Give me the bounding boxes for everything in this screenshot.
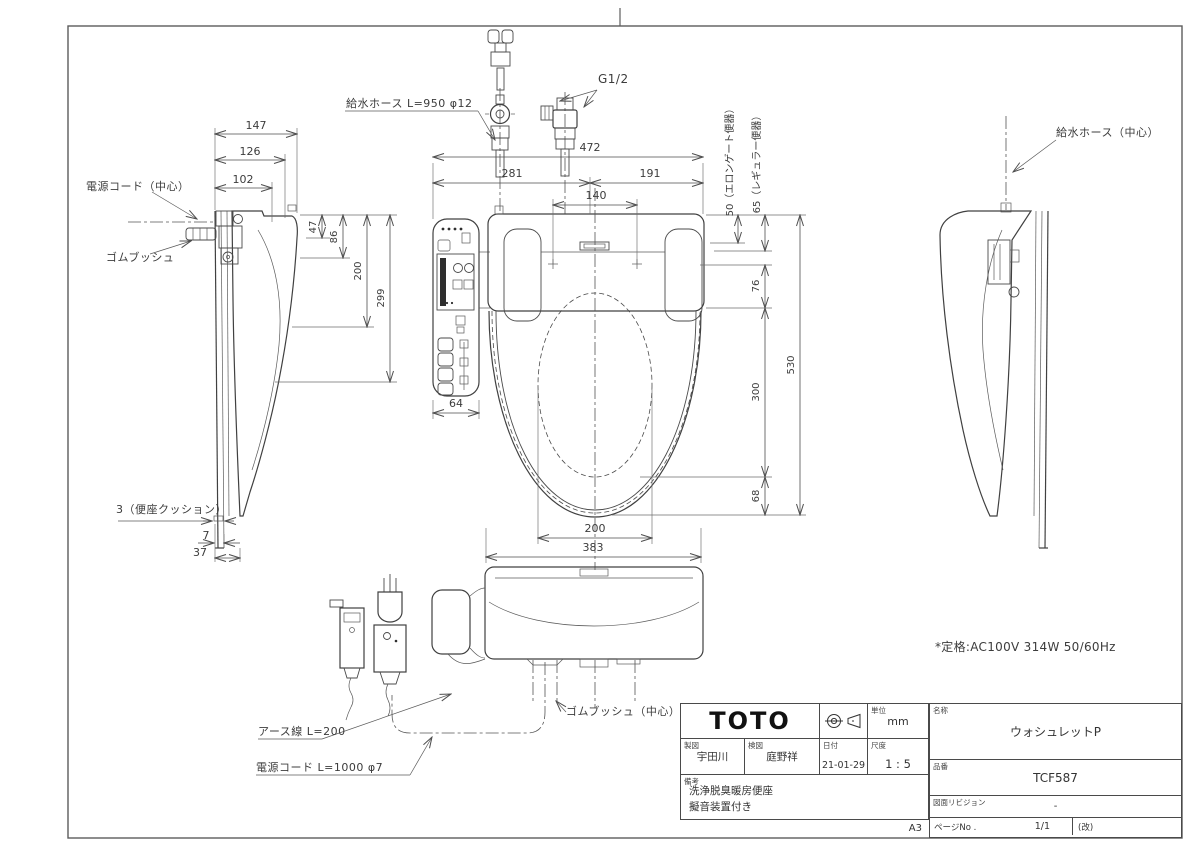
front-view bbox=[256, 567, 703, 775]
dim-7: 7 bbox=[203, 529, 210, 542]
dim-299: 299 bbox=[376, 288, 387, 307]
title-block-right: 名称 ウォシュレットP 品番 TCF587 図面リビジョン - ページNo . … bbox=[929, 703, 1182, 838]
callout-thread-size: G1/2 bbox=[598, 72, 629, 86]
title-block-logo-cell: TOTO bbox=[681, 704, 820, 739]
third-angle-projection-icon bbox=[823, 709, 865, 733]
unit-value: mm bbox=[868, 704, 928, 738]
title-block-left: TOTO 単位 mm 製図 bbox=[680, 703, 929, 820]
revision-cell: 図面リビジョン - bbox=[930, 796, 1181, 818]
dim-86: 86 bbox=[329, 231, 340, 244]
callout-power-cord-center: 電源コード（中心） bbox=[86, 178, 190, 194]
date-value: 21-01-29 bbox=[820, 739, 867, 774]
dim-200-plan: 200 bbox=[585, 522, 606, 535]
page-cell: ページNo . 1/1 bbox=[930, 818, 1073, 835]
page-label: ページNo . bbox=[930, 821, 976, 833]
dim-281: 281 bbox=[502, 167, 523, 180]
side-view-right bbox=[940, 116, 1056, 548]
remarks-line1: 洗浄脱臭暖房便座 bbox=[689, 783, 773, 799]
projection-symbol-cell bbox=[820, 704, 868, 739]
product-name: ウォシュレットP bbox=[930, 704, 1181, 759]
scale-cell: 尺度 1 : 5 bbox=[868, 739, 928, 775]
dim-47: 47 bbox=[308, 221, 319, 234]
revision-mark: (改) bbox=[1073, 821, 1093, 833]
dim-472: 472 bbox=[580, 141, 601, 154]
drawing-sheet: 147 126 102 47 86 200 299 7 37 bbox=[0, 0, 1200, 848]
plan-view-dimensions: 472 281 191 140 64 50（エロンゲート便器） 65（レギュラー… bbox=[433, 104, 806, 563]
part-number: TCF587 bbox=[930, 760, 1181, 795]
supply-fittings bbox=[345, 30, 597, 214]
dim-68: 68 bbox=[751, 490, 762, 503]
drafter-name: 宇田川 bbox=[681, 739, 744, 774]
remarks-line2: 擬音装置付き bbox=[689, 799, 773, 815]
dim-37: 37 bbox=[193, 546, 207, 559]
plan-view bbox=[433, 188, 704, 570]
revision-value: - bbox=[930, 796, 1181, 817]
part-number-cell: 品番 TCF587 bbox=[930, 760, 1181, 796]
callout-power-cord-bottom: 電源コード L=1000 φ7 bbox=[256, 759, 383, 775]
scale-value: 1 : 5 bbox=[868, 739, 928, 774]
callout-supply-hose-top: 給水ホース L=950 φ12 bbox=[346, 95, 473, 111]
checker-cell: 検図 庭野祥 bbox=[745, 739, 820, 775]
dim-147: 147 bbox=[246, 119, 267, 132]
dim-200-side: 200 bbox=[353, 261, 364, 280]
dim-76: 76 bbox=[751, 280, 762, 293]
callout-seat-cushion: 3（便座クッション） bbox=[116, 501, 227, 517]
callout-rubber-bush: ゴムブッシュ bbox=[106, 249, 174, 265]
dim-126: 126 bbox=[240, 145, 261, 158]
remarks-cell: 備考 洗浄脱臭暖房便座 擬音装置付き bbox=[681, 775, 928, 819]
unit-cell: 単位 mm bbox=[868, 704, 928, 739]
checker-name: 庭野祥 bbox=[745, 739, 819, 774]
dim-50-elongated: 50（エロンゲート便器） bbox=[723, 104, 736, 217]
sheet-size: A3 bbox=[830, 823, 922, 834]
toto-logo: TOTO bbox=[681, 704, 819, 738]
dim-191: 191 bbox=[640, 167, 661, 180]
revision-mark-cell: (改) bbox=[1073, 818, 1181, 835]
dim-383: 383 bbox=[583, 541, 604, 554]
page-value: 1/1 bbox=[1035, 821, 1050, 832]
dim-102: 102 bbox=[233, 173, 254, 186]
callout-supply-hose-center: 給水ホース（中心） bbox=[1056, 124, 1159, 140]
date-cell: 日付 21-01-29 bbox=[820, 739, 868, 775]
drafter-cell: 製図 宇田川 bbox=[681, 739, 745, 775]
dim-64: 64 bbox=[449, 397, 463, 410]
dim-530: 530 bbox=[786, 355, 797, 374]
dim-300: 300 bbox=[751, 382, 762, 401]
dim-65-regular: 65（レギュラー便器） bbox=[750, 111, 763, 214]
name-cell: 名称 ウォシュレットP bbox=[930, 704, 1181, 760]
callout-earth-wire: アース線 L=200 bbox=[258, 723, 346, 739]
rating-note: *定格:AC100V 314W 50/60Hz bbox=[935, 638, 1116, 655]
callout-rubber-bush-center: ゴムブッシュ（中心） bbox=[566, 703, 680, 719]
dim-140: 140 bbox=[586, 189, 607, 202]
